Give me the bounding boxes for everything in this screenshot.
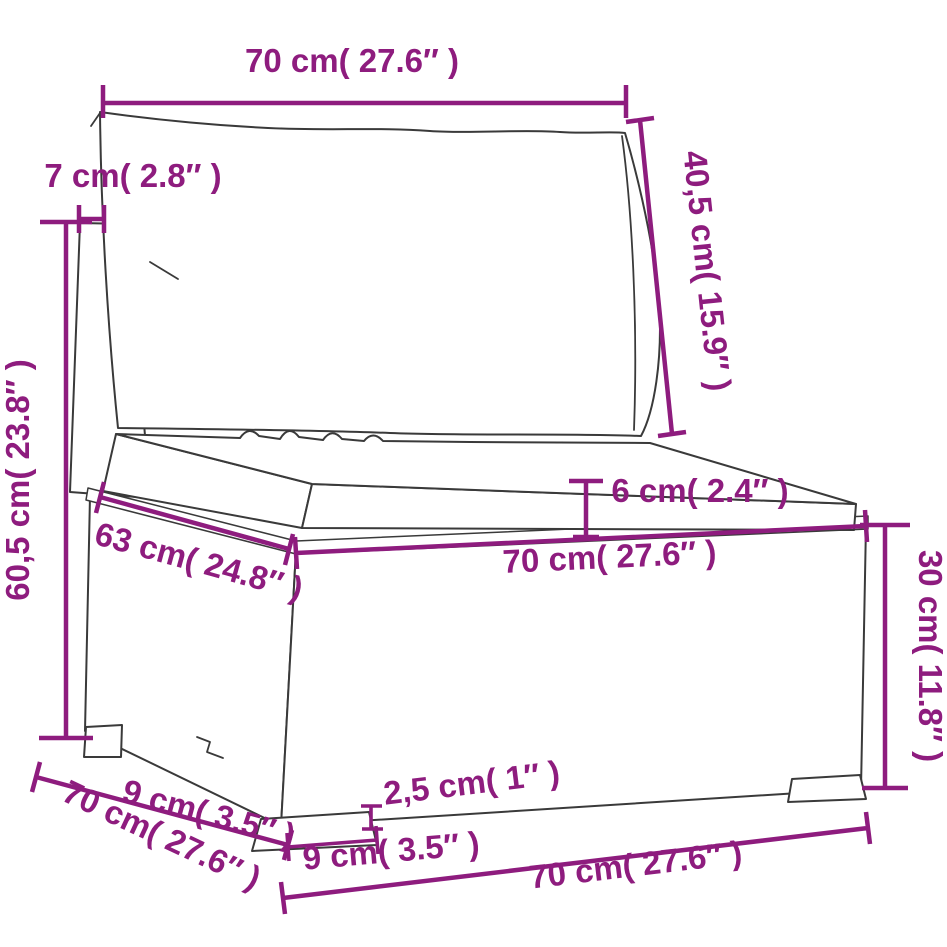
foot-back-left: [84, 725, 122, 757]
dim-seat-cushion-thickness-label: 6 cm( 2.4″ ): [611, 472, 788, 509]
dim-back-panel-thickness-label: 7 cm( 2.8″ ): [44, 157, 221, 194]
dim-base-height: 30 cm( 11.8″ ): [860, 525, 947, 788]
dimension-diagram: 70 cm( 27.6″ ) 7 cm( 2.8″ ) 60,5 cm( 23.…: [0, 0, 947, 947]
dim-base-bottom-width-label: 70 cm( 27.6″ ): [527, 834, 744, 896]
dim-base-height-label: 30 cm( 11.8″ ): [912, 550, 947, 762]
dim-back-cushion-height-label: 40,5 cm( 15.9″ ): [676, 149, 738, 393]
back-cushion-corner-fold: [91, 113, 100, 126]
dim-back-width-label: 70 cm( 27.6″ ): [245, 42, 459, 79]
foot-front-right: [788, 775, 866, 802]
sofa-dimension-drawing: 70 cm( 27.6″ ) 7 cm( 2.8″ ) 60,5 cm( 23.…: [0, 0, 947, 947]
dim-total-height-label: 60,5 cm( 23.8″ ): [0, 359, 36, 600]
dim-back-width: 70 cm( 27.6″ ): [103, 42, 626, 118]
